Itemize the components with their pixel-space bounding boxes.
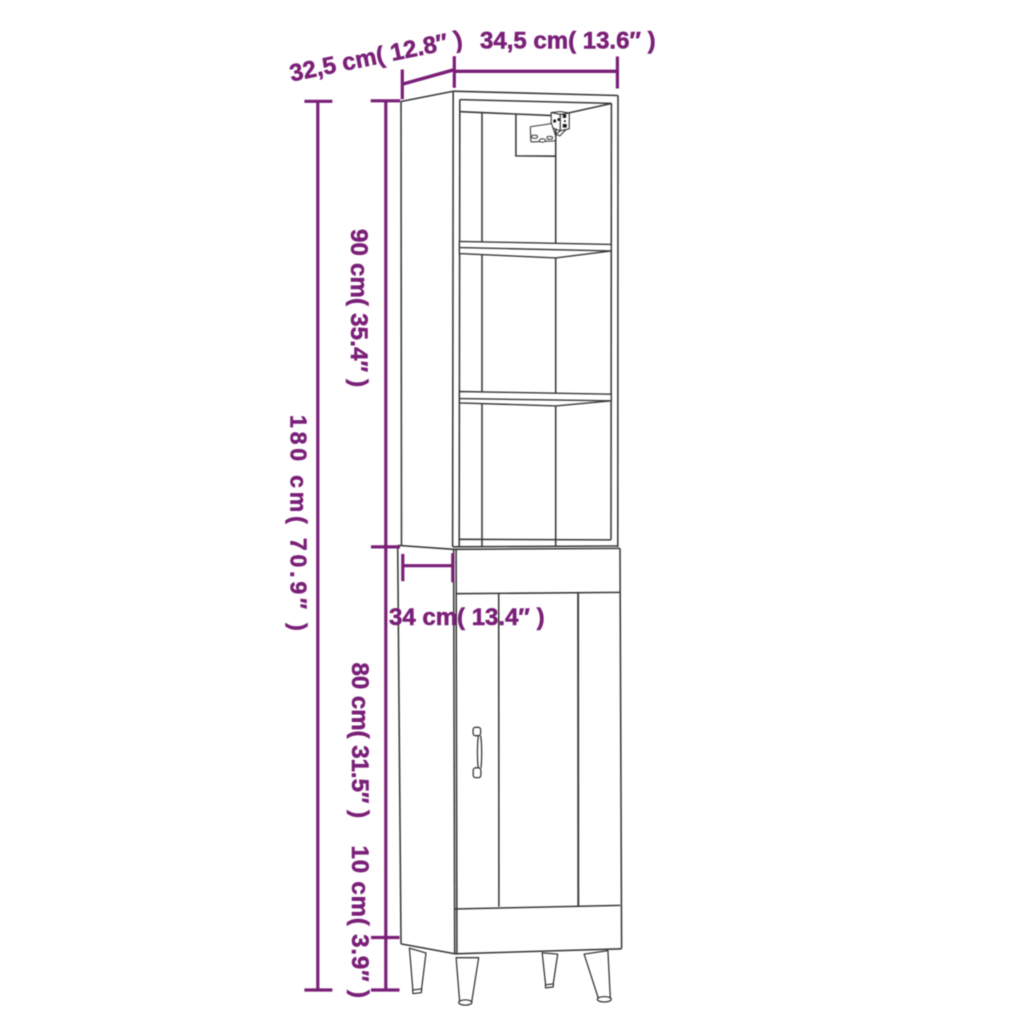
svg-text:32,5 cm( 12.8″ ): 32,5 cm( 12.8″ ) [287,26,464,87]
svg-text:90 cm( 35.4″ ): 90 cm( 35.4″ ) [345,229,372,387]
svg-text:34,5 cm( 13.6″ ): 34,5 cm( 13.6″ ) [480,28,656,55]
svg-text:180 cm( 70.9″ ): 180 cm( 70.9″ ) [286,415,312,635]
svg-text:34 cm( 13.4″ ): 34 cm( 13.4″ ) [389,604,545,631]
svg-text:80 cm( 31.5″ ): 80 cm( 31.5″ ) [346,663,373,819]
svg-text:10 cm( 3.9″ ): 10 cm( 3.9″ ) [346,846,373,999]
